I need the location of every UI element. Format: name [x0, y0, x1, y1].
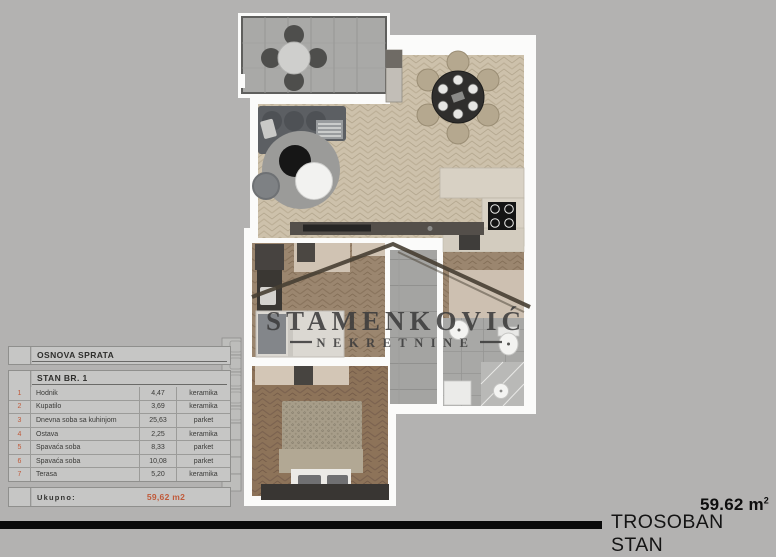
- room-name: Ostava: [30, 428, 139, 441]
- room-floor-type: parket: [176, 414, 230, 427]
- room-floor-type: keramika: [176, 387, 230, 400]
- unit-title: STAN BR. 1: [32, 372, 227, 385]
- tv-sideboard: [290, 222, 484, 235]
- coffee-table-white: [296, 163, 333, 200]
- bed-headboard: [261, 484, 389, 500]
- room-floor-type: keramika: [176, 468, 230, 481]
- terrace-door-opening: [240, 74, 245, 88]
- room-area: 4,47: [139, 387, 176, 400]
- row-number: 4: [9, 428, 30, 441]
- room-name: Kupatilo: [30, 401, 139, 414]
- room-name: Spavaća soba: [30, 441, 139, 454]
- footer-rule: [0, 521, 602, 529]
- table-row: 6 Spavaća soba 10,08 parket: [9, 454, 230, 468]
- shower: [481, 362, 524, 406]
- section-title: OSNOVA SPRATA: [32, 348, 227, 362]
- washing-machine: [444, 381, 471, 405]
- room-area: 10,08: [139, 455, 176, 468]
- apartment-type-label: TROSOBAN STAN: [611, 511, 776, 557]
- room-floor-type: parket: [176, 455, 230, 468]
- table-row: 3 Dnevna soba sa kuhinjom 25,63 parket: [9, 413, 230, 427]
- table-section-header: OSNOVA SPRATA: [8, 346, 231, 365]
- table-row: 4 Ostava 2,25 keramika: [9, 427, 230, 441]
- room-area: 8,33: [139, 441, 176, 454]
- room-name: Spavaća soba: [30, 455, 139, 468]
- room-area: 3,69: [139, 401, 176, 414]
- square-meter-superscript: 2: [764, 495, 769, 505]
- room-terrace: [240, 17, 386, 93]
- room-area: 5,20: [139, 468, 176, 481]
- row-number: 7: [9, 468, 30, 481]
- total-value: 59,62 m2: [127, 488, 205, 506]
- table-row: 5 Spavaća soba 8,33 parket: [9, 440, 230, 454]
- row-number: 2: [9, 401, 30, 414]
- room-floor-type: parket: [176, 441, 230, 454]
- room-name: Hodnik: [30, 387, 139, 400]
- row-number: 6: [9, 455, 30, 468]
- armchair: [253, 173, 279, 199]
- room-floor-type: keramika: [176, 428, 230, 441]
- row-number: 5: [9, 441, 30, 454]
- total-label: Ukupno:: [37, 488, 76, 506]
- table-divider: [30, 488, 32, 506]
- double-bed: [279, 401, 363, 487]
- table-rows: 1 Hodnik 4,47 keramika 2 Kupatilo 3,69 k…: [9, 387, 230, 481]
- table-total-row: Ukupno: 59,62 m2: [8, 487, 231, 507]
- table-row: 1 Hodnik 4,47 keramika: [9, 387, 230, 400]
- row-number: 3: [9, 414, 30, 427]
- table-row: 7 Terasa 5,20 keramika: [9, 467, 230, 481]
- room-name: Terasa: [30, 468, 139, 481]
- room-area-table: STAN BR. 1 1 Hodnik 4,47 keramika 2 Kupa…: [8, 370, 231, 482]
- desk: [255, 244, 284, 270]
- room-area: 2,25: [139, 428, 176, 441]
- room-floor-type: keramika: [176, 401, 230, 414]
- table-row: 2 Kupatilo 3,69 keramika: [9, 400, 230, 414]
- real-estate-floorplan-page: { "window": { "background": "#b3b2b1" },…: [0, 0, 776, 550]
- watermark-name: STAMENKOVIĆ: [266, 306, 526, 336]
- room-area: 25,63: [139, 414, 176, 427]
- watermark-subtitle: NEKRETNINE: [316, 336, 475, 350]
- room-name: Dnevna soba sa kuhinjom: [30, 414, 139, 427]
- row-number: 1: [9, 387, 30, 400]
- room-bedroom-2: [252, 366, 389, 500]
